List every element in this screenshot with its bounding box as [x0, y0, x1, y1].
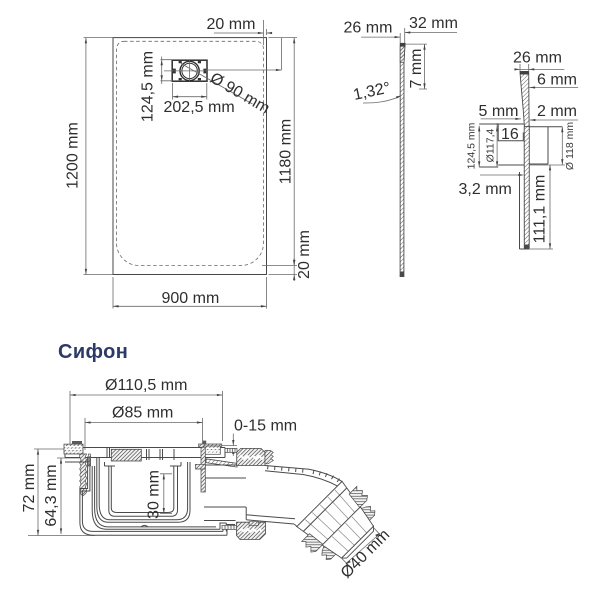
- svg-text:202,5 mm: 202,5 mm: [164, 99, 235, 116]
- svg-text:900 mm: 900 mm: [162, 290, 220, 307]
- svg-text:1180 mm: 1180 mm: [278, 119, 295, 185]
- svg-text:26 mm: 26 mm: [513, 50, 562, 67]
- svg-text:Ø85 mm: Ø85 mm: [112, 405, 173, 422]
- svg-text:3,2 mm: 3,2 mm: [459, 181, 512, 198]
- svg-text:20 mm: 20 mm: [207, 16, 256, 33]
- svg-text:124,5 mm: 124,5 mm: [140, 51, 157, 122]
- svg-text:2 mm: 2 mm: [537, 103, 577, 120]
- svg-text:6 mm: 6 mm: [537, 72, 577, 89]
- svg-text:16: 16: [501, 126, 519, 143]
- svg-text:0-15 mm: 0-15 mm: [234, 418, 297, 435]
- svg-text:26 mm: 26 mm: [344, 20, 393, 37]
- svg-text:32 mm: 32 mm: [409, 15, 458, 32]
- svg-text:Ø117,4: Ø117,4: [484, 129, 496, 163]
- svg-text:5 mm: 5 mm: [479, 103, 519, 120]
- svg-text:64,3 mm: 64,3 mm: [43, 464, 60, 526]
- svg-text:30 mm: 30 mm: [146, 470, 163, 519]
- svg-text:Ø110,5 mm: Ø110,5 mm: [105, 377, 187, 394]
- svg-text:111,1 mm: 111,1 mm: [532, 175, 549, 244]
- svg-text:124,5 mm: 124,5 mm: [465, 122, 477, 169]
- svg-text:20 mm: 20 mm: [296, 230, 313, 279]
- svg-text:72 mm: 72 mm: [21, 464, 38, 513]
- svg-text:1200 mm: 1200 mm: [65, 122, 82, 189]
- svg-text:7 mm: 7 mm: [408, 49, 425, 89]
- svg-text:Ø 118 mm: Ø 118 mm: [564, 122, 576, 170]
- svg-text:Сифон: Сифон: [58, 341, 128, 363]
